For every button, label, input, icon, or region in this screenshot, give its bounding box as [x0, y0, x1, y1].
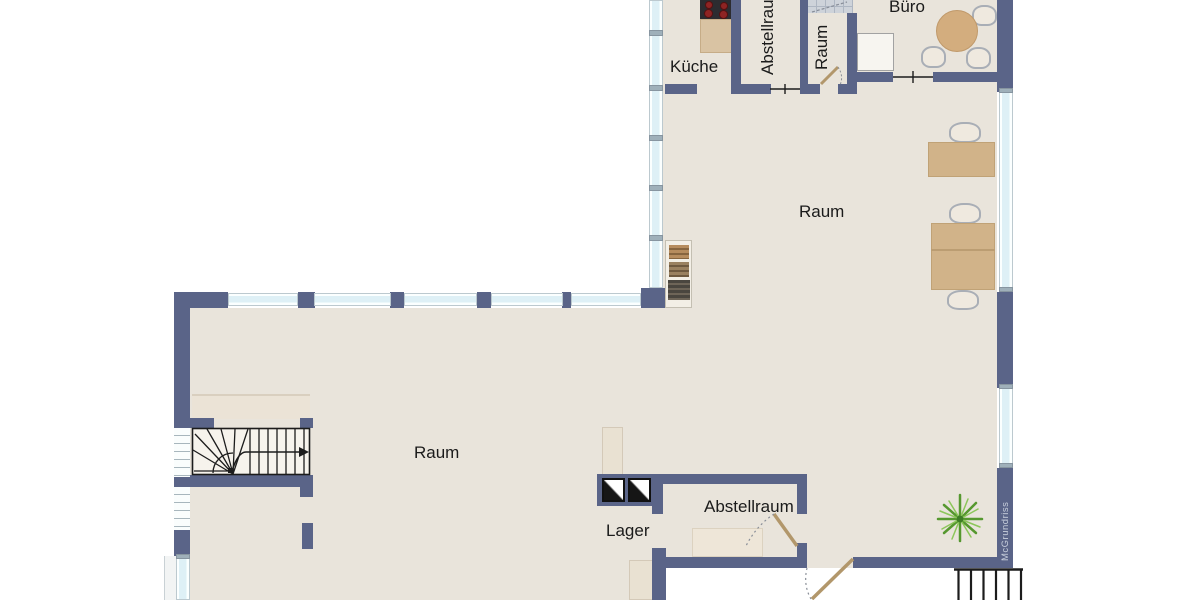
floor-main — [190, 308, 997, 558]
wall — [797, 474, 807, 514]
room-label-lager: Lager — [606, 521, 649, 541]
desk-chair — [949, 122, 981, 143]
wall — [652, 474, 663, 514]
wall — [933, 72, 997, 82]
room-label-raum-top: Raum — [812, 25, 832, 70]
stove-burner — [704, 9, 713, 18]
wall — [655, 557, 807, 568]
wall — [800, 0, 808, 94]
stair-landing — [192, 394, 310, 419]
office-chair — [921, 46, 946, 68]
wall — [300, 475, 313, 497]
storage-cabinet — [602, 427, 623, 477]
window — [228, 293, 298, 306]
window — [314, 293, 391, 306]
wall — [190, 418, 214, 428]
wall — [997, 0, 1013, 92]
books — [669, 245, 689, 259]
wall — [174, 308, 190, 428]
wall — [847, 13, 857, 94]
floor-entrance-threshold — [807, 556, 853, 568]
watermark: McGrundriss — [1000, 502, 1011, 561]
wall — [741, 84, 771, 94]
window-joint — [999, 88, 1013, 93]
room-label-raum-lower: Raum — [414, 443, 459, 463]
floor-plan: Küche Abstellraum Raum Büro Raum Raum La… — [0, 0, 1200, 600]
window-joint — [999, 287, 1013, 292]
room-label-abstellraum-bottom: Abstellraum — [704, 497, 794, 517]
floor-bottom-left — [190, 556, 655, 600]
window — [404, 293, 477, 306]
wall — [800, 84, 820, 94]
double-desk-seam — [931, 249, 995, 251]
stove-burner — [705, 1, 713, 9]
shower — [808, 0, 853, 13]
wall — [663, 474, 807, 484]
wall — [797, 543, 807, 559]
wall — [300, 418, 313, 428]
window-joint — [649, 135, 663, 141]
window — [999, 90, 1013, 292]
room-label-buero: Büro — [889, 0, 925, 17]
office-round-table — [936, 10, 978, 52]
double-desk — [931, 223, 995, 290]
wall — [665, 84, 697, 94]
wall — [857, 72, 893, 82]
window-sill — [164, 556, 176, 600]
window-joint — [176, 554, 190, 559]
window — [999, 386, 1013, 468]
desk-chair — [949, 203, 981, 224]
wall — [298, 292, 315, 308]
wall — [477, 292, 491, 308]
wall — [997, 292, 1013, 388]
window-joint — [649, 85, 663, 91]
wall — [562, 292, 571, 308]
wall — [648, 288, 664, 308]
wall — [190, 475, 313, 487]
wall — [731, 0, 741, 94]
window — [176, 558, 190, 600]
white-cabinet — [857, 33, 894, 71]
office-chair — [966, 47, 991, 69]
window — [491, 293, 563, 306]
stove-burner — [719, 10, 728, 19]
wall — [302, 523, 313, 549]
storage-cabinet — [692, 528, 763, 557]
wall — [390, 292, 404, 308]
shaft-marker — [628, 478, 651, 502]
window-joint — [649, 185, 663, 191]
exterior-stairs-bottom — [954, 568, 1023, 600]
bookshelf — [665, 240, 692, 308]
window — [571, 293, 641, 306]
wall — [174, 292, 228, 308]
wall — [652, 548, 666, 600]
desk — [928, 142, 995, 177]
books — [669, 262, 689, 277]
books — [668, 280, 690, 300]
window-joint — [999, 463, 1013, 468]
room-label-abstellraum-top: Abstellraum — [758, 0, 778, 75]
stove-burner — [720, 2, 728, 10]
room-label-kueche: Küche — [670, 57, 718, 77]
kitchen-counter — [700, 19, 734, 53]
shaft-marker — [602, 478, 625, 502]
exterior-stair-left — [174, 487, 190, 530]
wall — [174, 477, 190, 487]
window-joint — [999, 384, 1013, 389]
desk-chair — [947, 290, 979, 310]
storage-cabinet — [629, 560, 653, 600]
window-joint — [649, 30, 663, 36]
window-joint — [649, 235, 663, 241]
wall — [853, 557, 997, 568]
room-label-raum-upper: Raum — [799, 202, 844, 222]
exterior-stair-left — [174, 428, 190, 477]
window — [649, 0, 663, 288]
